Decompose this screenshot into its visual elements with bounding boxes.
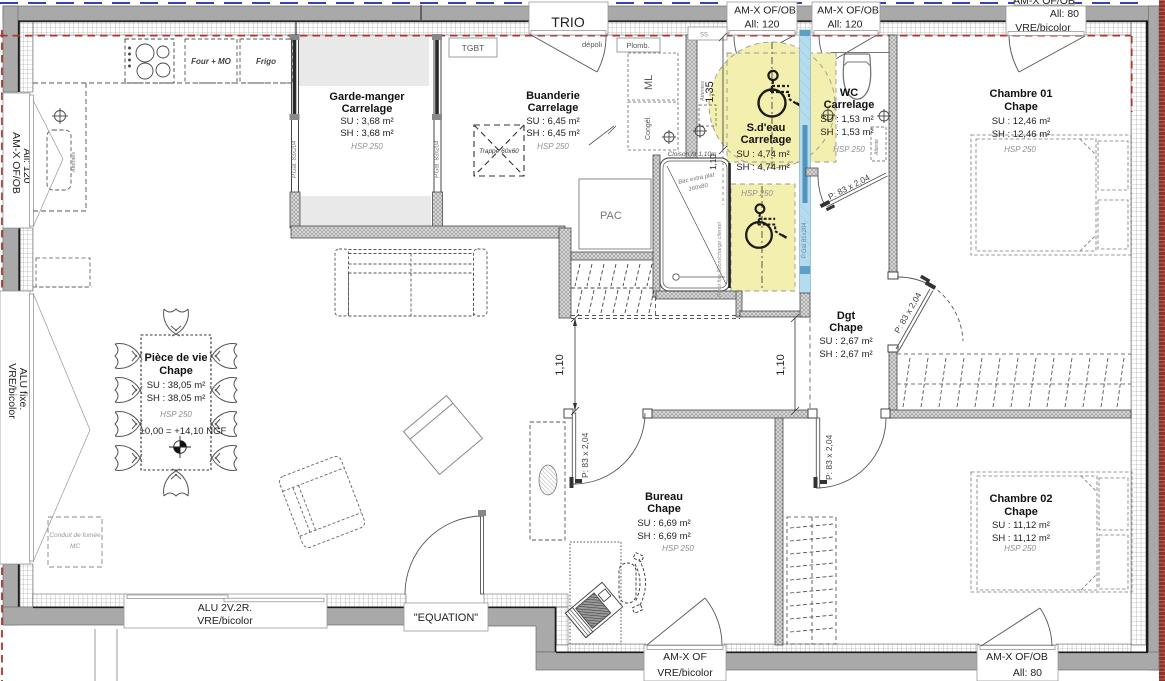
svg-text:HSP 250: HSP 250 (1004, 544, 1036, 553)
svg-text:AM-X OF/OB: AM-X OF/OB (734, 5, 796, 17)
svg-text:SH : 11,12 m²: SH : 11,12 m² (992, 533, 1050, 544)
svg-text:ML: ML (643, 75, 655, 90)
svg-text:AM-X OF: AM-X OF (663, 651, 707, 663)
svg-text:All: 80: All: 80 (1050, 8, 1079, 20)
svg-text:1,10: 1,10 (709, 154, 718, 170)
svg-text:SU : 6,69 m²: SU : 6,69 m² (637, 518, 690, 529)
svg-text:P: 83 x 2,04: P: 83 x 2,04 (580, 432, 590, 478)
svg-text:Carrelage: Carrelage (342, 103, 393, 115)
svg-text:SH : 38,05 m²: SH : 38,05 m² (147, 393, 206, 404)
svg-text:SS: SS (700, 33, 708, 39)
svg-text:SU : 3,68 m²: SU : 3,68 m² (340, 116, 393, 127)
svg-text:SU : 6,45 m²: SU : 6,45 m² (526, 116, 579, 127)
svg-text:Buanderie: Buanderie (526, 90, 580, 102)
svg-text:All: 120: All: 120 (744, 19, 779, 31)
svg-text:Chambre 01: Chambre 01 (990, 88, 1053, 100)
svg-text:"EQUATION": "EQUATION" (414, 612, 479, 624)
svg-text:Carrelage: Carrelage (741, 134, 792, 146)
svg-text:Chape: Chape (647, 503, 681, 515)
svg-text:dépoli: dépoli (582, 40, 602, 49)
svg-text:±0,00 = +14,10 NGF: ±0,00 = +14,10 NGF (140, 426, 227, 437)
svg-text:HSP 250: HSP 250 (662, 544, 694, 553)
svg-text:SH : 1,53 m²: SH : 1,53 m² (820, 127, 873, 138)
svg-text:SH : 2,67 m²: SH : 2,67 m² (819, 349, 872, 360)
svg-text:VRE/bicolor: VRE/bicolor (6, 363, 18, 419)
svg-text:VRE/bicolor: VRE/bicolor (197, 615, 253, 627)
svg-text:Chape: Chape (159, 365, 193, 377)
svg-text:1,10: 1,10 (775, 354, 787, 375)
svg-text:Attente: Attente (874, 139, 880, 156)
svg-text:SU : 38,05 m²: SU : 38,05 m² (147, 380, 206, 391)
svg-text:HSP 250: HSP 250 (351, 142, 383, 151)
svg-text:ALU 2V.2R.: ALU 2V.2R. (198, 602, 252, 614)
svg-text:WC: WC (840, 87, 858, 99)
svg-text:TRIO: TRIO (551, 14, 585, 30)
svg-text:Conduit de fumée: Conduit de fumée (49, 532, 101, 539)
svg-text:1,35: 1,35 (704, 81, 716, 102)
svg-text:P.Gal. 83x204: P.Gal. 83x204 (435, 140, 441, 178)
svg-text:P.Gal 81x204: P.Gal 81x204 (802, 222, 808, 258)
svg-text:SU : 2,67 m²: SU : 2,67 m² (819, 336, 872, 347)
svg-text:HSP 250: HSP 250 (741, 189, 773, 198)
svg-text:TGBT: TGBT (462, 43, 485, 53)
svg-text:HSP 250: HSP 250 (537, 142, 569, 151)
svg-text:SU : 1,53 m²: SU : 1,53 m² (820, 114, 873, 125)
svg-text:Congél.: Congél. (645, 116, 652, 140)
svg-text:P: 83 x 2,04: P: 83 x 2,04 (824, 434, 834, 480)
svg-text:Four + MO: Four + MO (191, 57, 232, 66)
svg-text:Chape: Chape (829, 322, 863, 334)
svg-text:Chape: Chape (1004, 506, 1038, 518)
svg-text:Attentes: Attentes (71, 152, 77, 173)
svg-text:Chambre 02: Chambre 02 (990, 493, 1053, 505)
svg-text:VRE/bicolor: VRE/bicolor (657, 667, 713, 679)
svg-text:1,10: 1,10 (554, 354, 566, 375)
svg-text:S.d'eau: S.d'eau (747, 122, 786, 134)
svg-text:Dgt: Dgt (837, 310, 856, 322)
svg-text:AM-X OF/OB: AM-X OF/OB (817, 5, 879, 17)
svg-text:All: 120: All: 120 (827, 19, 862, 31)
svg-text:Chape: Chape (1004, 101, 1038, 113)
svg-text:SH : 3,68 m²: SH : 3,68 m² (340, 128, 393, 139)
svg-text:HSP 250: HSP 250 (833, 145, 865, 154)
svg-text:SH : 6,69 m²: SH : 6,69 m² (637, 531, 690, 542)
svg-text:Plomb.: Plomb. (626, 41, 649, 50)
svg-text:Pièce de vie: Pièce de vie (145, 352, 208, 364)
svg-text:SH : 12,46 m²: SH : 12,46 m² (992, 129, 1051, 140)
svg-text:Carrelage: Carrelage (824, 99, 875, 111)
svg-text:P.Gal. 83x204: P.Gal. 83x204 (292, 140, 298, 178)
svg-text:MC: MC (70, 543, 80, 550)
svg-text:SH : 6,45 m²: SH : 6,45 m² (526, 128, 579, 139)
svg-text:PAC: PAC (600, 210, 622, 222)
svg-text:HSP 250: HSP 250 (1004, 145, 1036, 154)
svg-text:SH : 4,74 m²: SH : 4,74 m² (736, 162, 789, 173)
svg-text:SU : 12,46 m²: SU : 12,46 m² (992, 116, 1051, 127)
svg-text:SU : 4,74 m²: SU : 4,74 m² (736, 149, 789, 160)
svg-text:Bureau: Bureau (645, 491, 683, 503)
svg-text:Trappe 60x60: Trappe 60x60 (479, 148, 519, 155)
svg-text:AM-X OF/OB: AM-X OF/OB (10, 132, 22, 194)
svg-text:AM-X OF/OB: AM-X OF/OB (986, 651, 1048, 663)
svg-text:Carrelage: Carrelage (528, 102, 579, 114)
svg-text:Garde-manger: Garde-manger (329, 91, 405, 103)
svg-text:Paroi fixe 90cm/charge cliente: Paroi fixe 90cm/charge clientel (717, 221, 723, 297)
svg-text:Frigo: Frigo (256, 57, 276, 66)
svg-text:All: 80: All: 80 (1013, 667, 1042, 679)
svg-text:SU : 11,12 m²: SU : 11,12 m² (992, 520, 1050, 531)
svg-text:HSP 250: HSP 250 (160, 410, 192, 419)
